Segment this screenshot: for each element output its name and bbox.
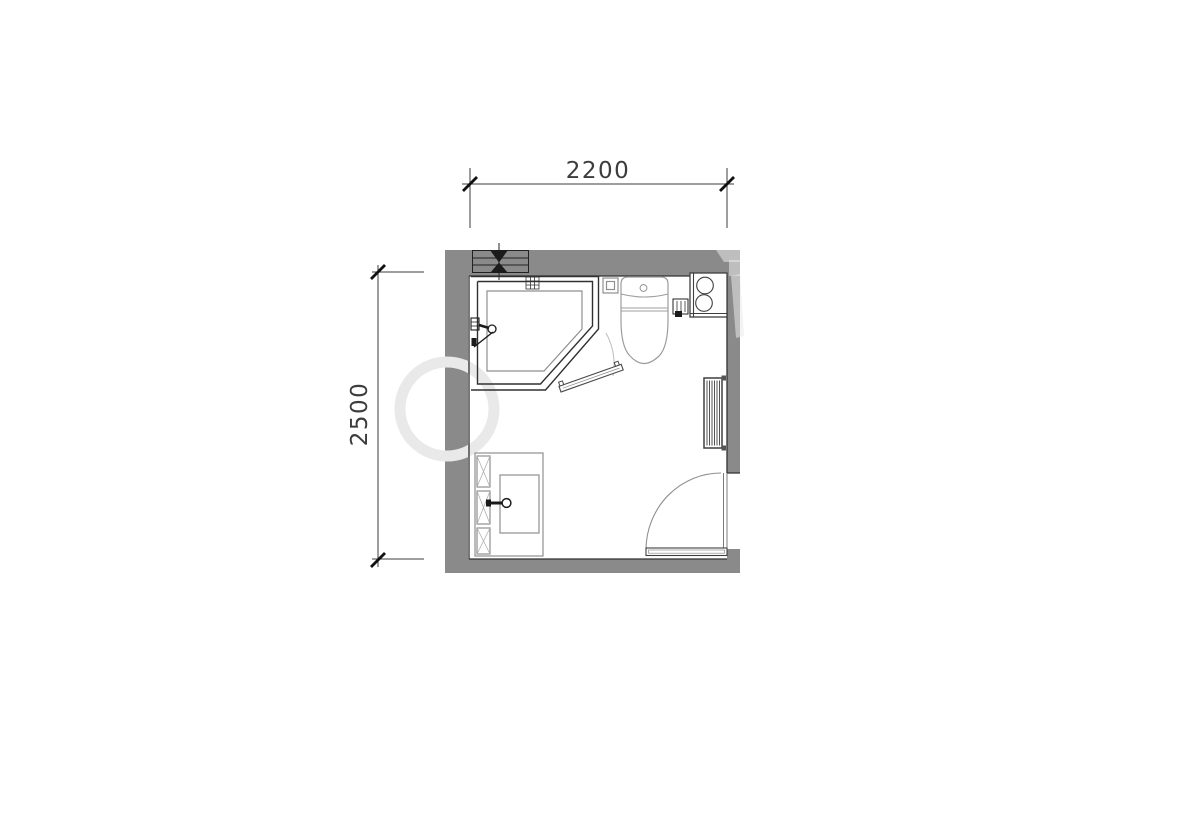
toilet-body (621, 277, 668, 364)
tap-valve-box (673, 299, 688, 317)
wall-right-stub (727, 549, 740, 561)
bathroom-floor-plan-page: 2200 2500 (0, 0, 1198, 831)
dimension-left: 2500 (347, 265, 424, 567)
shower-enclosure (471, 277, 623, 393)
dimension-height-label: 2500 (347, 382, 373, 447)
door-leaf (646, 548, 727, 556)
door-jamb-lines (724, 473, 728, 548)
dimension-top: 2200 (462, 158, 734, 228)
entry-door (646, 473, 727, 556)
wall-left (445, 250, 468, 572)
shower-tray (487, 291, 582, 371)
watermark-corner-block (729, 260, 740, 276)
dimension-width-label: 2200 (566, 158, 631, 184)
wall-drain-icon (526, 277, 539, 289)
vanity (475, 453, 543, 556)
wall-bottom (445, 559, 740, 573)
washing-machine (690, 273, 727, 317)
door-swing-arc (646, 473, 721, 549)
water-inlet-icon (603, 278, 618, 293)
towel-radiator (704, 376, 726, 451)
shower-frame-inner (478, 282, 593, 385)
shower-mixer-icon (471, 318, 496, 347)
radiator-bracket (722, 376, 727, 381)
bathroom-floor-plan: 2200 2500 (0, 0, 1198, 831)
radiator-bracket (722, 446, 727, 451)
